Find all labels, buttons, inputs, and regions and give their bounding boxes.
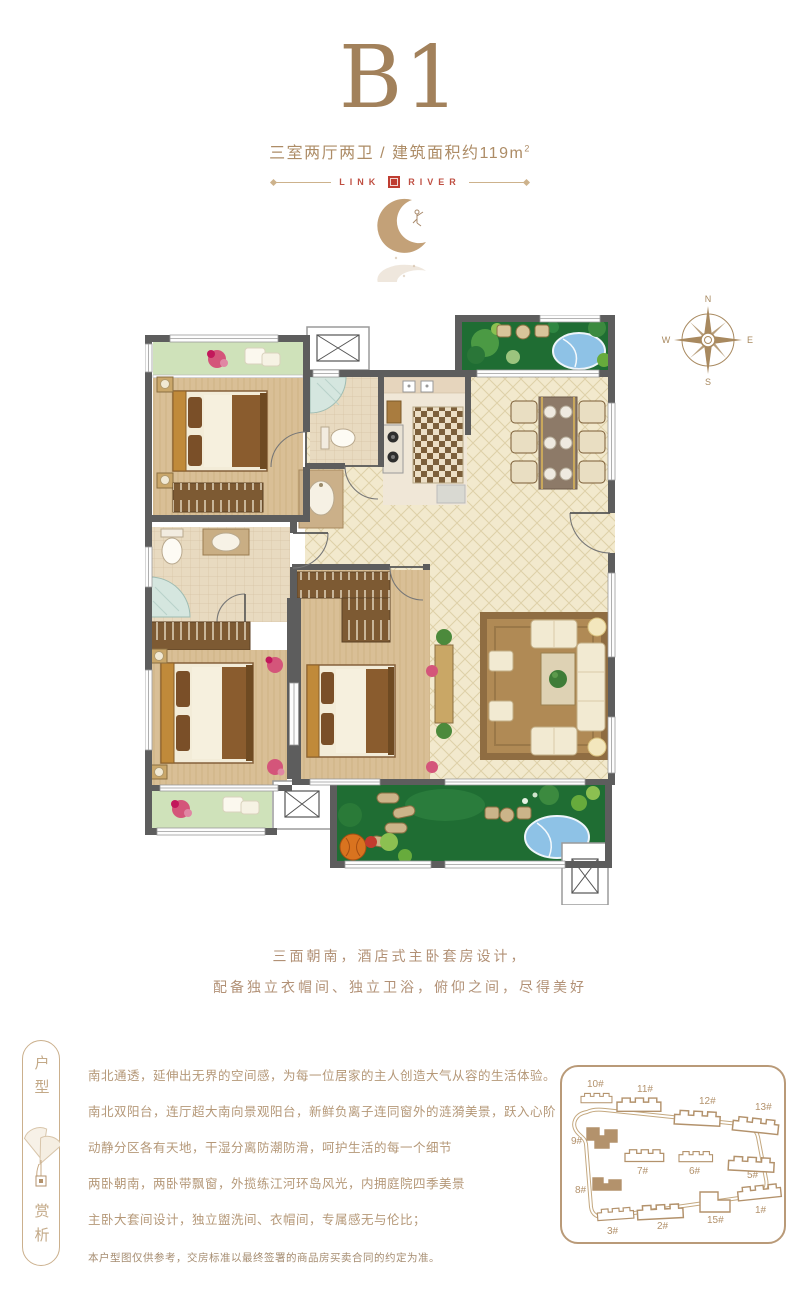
svg-text:9#: 9#: [571, 1136, 583, 1147]
svg-text:12#: 12#: [699, 1096, 716, 1107]
bedroom-middle: [295, 570, 430, 779]
balcony-south: [150, 791, 272, 828]
master-bedroom: [150, 649, 287, 785]
brand-divider: LINK RIVER: [0, 176, 800, 188]
badge-top-label: 户型: [31, 1055, 52, 1103]
subtitle-sup: 2: [524, 144, 531, 154]
dining-set: [511, 397, 605, 489]
description-line: 南北通透，延伸出无界的空间感，为每一位居家的主人创造大气从容的生活体验。: [88, 1058, 558, 1094]
pond-icon: [553, 333, 605, 369]
divider-line-right: [469, 182, 527, 183]
brand-seal-icon: [388, 176, 400, 188]
subtitle-text: 三室两厅两卫 / 建筑面积约119m: [269, 145, 524, 162]
site-map: .outline{fill:#fff;stroke:#b3926c;stroke…: [557, 1062, 789, 1247]
svg-text:8#: 8#: [575, 1185, 587, 1196]
description-block: 南北通透，延伸出无界的空间感，为每一位居家的主人创造大气从容的生活体验。 南北双…: [88, 1058, 558, 1266]
armchair-icon: [489, 651, 513, 671]
compass: N S W E: [660, 292, 756, 388]
svg-text:5#: 5#: [747, 1170, 759, 1181]
side-badge: 户型 赏析: [22, 1040, 60, 1266]
moon-illustration: [366, 196, 434, 282]
toilet-icon: [162, 538, 182, 564]
svg-text:15#: 15#: [707, 1215, 724, 1226]
description-line: 两卧朝南，两卧带飘窗，外揽练江河环岛风光，内拥庭院四季美景: [88, 1166, 558, 1202]
stove-icon: [383, 425, 403, 473]
svg-text:13#: 13#: [755, 1102, 772, 1113]
slogan-line-2: 配备独立衣帽间、独立卫浴，俯仰之间，尽得美好: [0, 977, 800, 997]
ginkgo-leaf-icon: [22, 1114, 60, 1192]
svg-text:6#: 6#: [689, 1166, 701, 1177]
armchair-icon: [489, 701, 513, 721]
disclaimer-text: 本户型图仅供参考，交房标准以最终签署的商品房买卖合同的约定为准。: [88, 1250, 558, 1266]
bathroom-north: [310, 377, 378, 467]
slogan-line-1: 三面朝南，酒店式主卧套房设计，: [0, 946, 800, 966]
compass-e: E: [747, 335, 753, 345]
bedroom-north: [153, 342, 303, 516]
compass-w: W: [662, 335, 671, 345]
description-line: 动静分区各有天地，干湿分离防潮防滑，呵护生活的每一个细节: [88, 1130, 558, 1166]
svg-text:1#: 1#: [755, 1205, 767, 1216]
svg-text:10#: 10#: [587, 1079, 604, 1090]
elevator-shaft-top: [307, 327, 369, 370]
elevator-shaft-bottom: [562, 843, 608, 905]
kitchen: [383, 377, 467, 505]
toilet-icon: [331, 429, 355, 447]
description-line: 南北双阳台，连厅超大南向景观阳台，新鲜负离子连同窗外的涟漪美景，跃入心阶: [88, 1094, 558, 1130]
badge-bottom-label: 赏析: [31, 1203, 52, 1251]
compass-s: S: [705, 377, 711, 387]
bed-icon: [161, 663, 253, 763]
divider-line-left: [273, 182, 331, 183]
description-line: 主卧大套间设计，独立盥洗间、衣帽间，专属感无与伦比；: [88, 1202, 558, 1238]
brand-right: RIVER: [408, 177, 461, 187]
poster-page: B1 三室两厅两卫 / 建筑面积约119m2 LINK RIVER: [0, 0, 800, 1300]
brand-left: LINK: [339, 177, 380, 187]
garden-balcony-north: [462, 319, 611, 370]
svg-text:7#: 7#: [637, 1166, 649, 1177]
master-bathroom: [150, 527, 290, 622]
console-icon: [435, 645, 453, 723]
bed-icon: [307, 665, 395, 757]
floor-plan: [145, 315, 660, 905]
compass-n: N: [705, 294, 712, 304]
master-wardrobe: [150, 622, 250, 650]
sofa-icon: [577, 643, 605, 731]
svg-text:3#: 3#: [607, 1226, 619, 1237]
plan-title: B1: [0, 28, 800, 128]
plan-subtitle: 三室两厅两卫 / 建筑面积约119m2: [0, 139, 800, 163]
bed-icon: [173, 391, 267, 471]
svg-text:2#: 2#: [657, 1221, 669, 1232]
svg-text:11#: 11#: [637, 1084, 653, 1095]
wardrobe-icon: [173, 483, 263, 512]
